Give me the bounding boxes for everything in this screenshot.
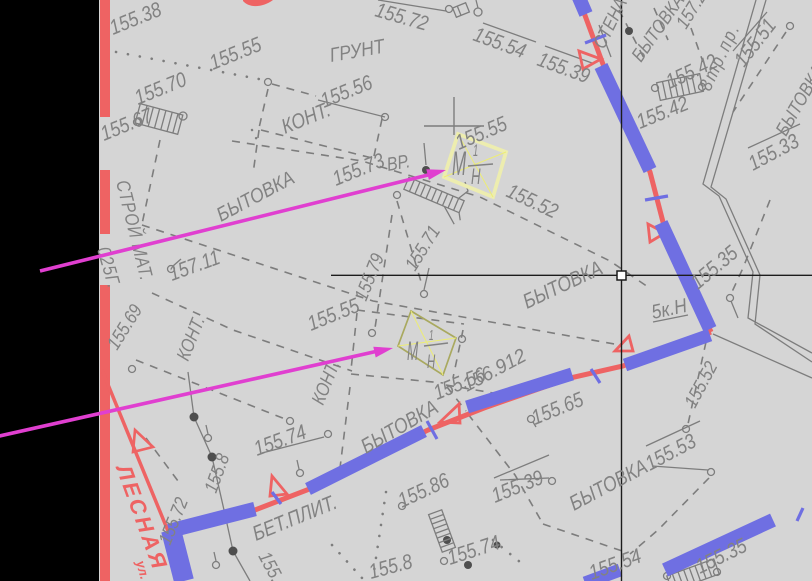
svg-text:М: М	[407, 336, 418, 366]
svg-text:Н: Н	[427, 352, 436, 373]
svg-text:Н: Н	[471, 165, 481, 189]
svg-text:1: 1	[429, 326, 434, 343]
svg-text:ВР.: ВР.	[385, 150, 412, 175]
